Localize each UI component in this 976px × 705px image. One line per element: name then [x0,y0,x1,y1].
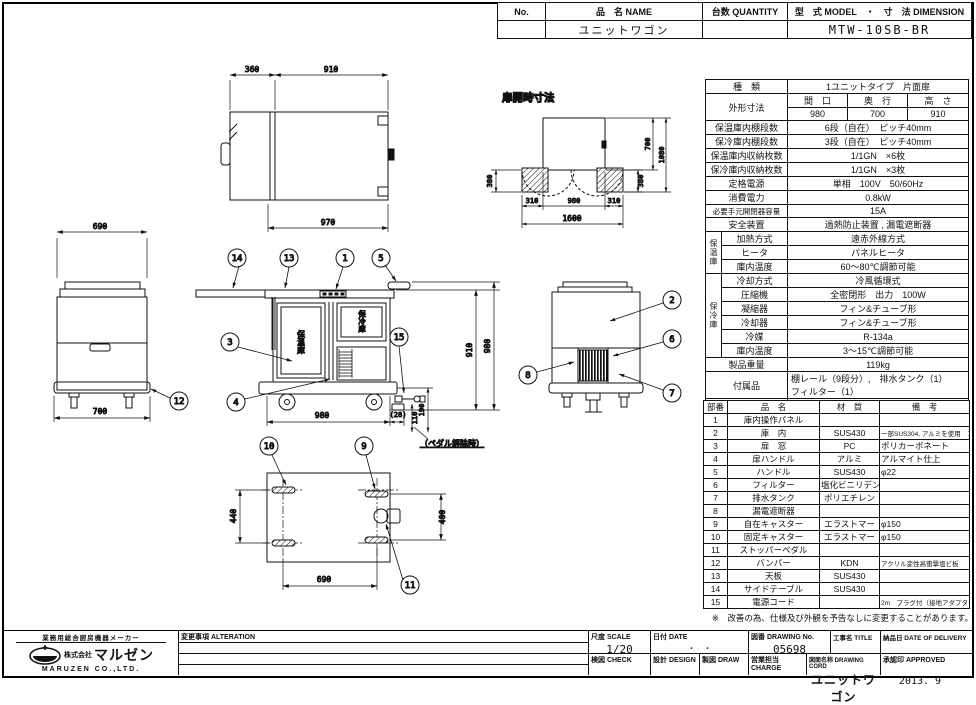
balloon-2: 2 [663,291,681,309]
spec-value: 1/1GN ×6枚 [788,149,969,163]
spec-value: 6段（自在） ピッチ40mm [788,121,969,135]
part-note: φ22 [880,466,970,479]
draw-label: 製図 DRAW [700,654,748,666]
drawing-name-cell: 図面名称 DRAWING CORDユニットワゴン [806,653,880,675]
part-mat: ポリエチレン [820,492,880,505]
spec-value: 980 [788,108,848,121]
spec-label: 保冷庫内棚段数 [706,135,788,149]
parts-row: 7排水タンクポリエチレン [704,492,970,505]
part-no: 14 [704,583,728,596]
alteration-line [179,664,588,665]
part-name: 庫内操作パネル [728,414,820,427]
door-open-title: 扉開時寸法 [501,91,555,104]
spec-label: 保温庫内棚段数 [706,121,788,135]
company-name-en: MARUZEN CO.,LTD. [4,666,178,673]
spec-label: 奥 行 [848,94,908,108]
front-dim-980v: 980 [483,339,492,354]
parts-row: 13天板SUS430 [704,570,970,583]
svg-text:9: 9 [361,442,366,452]
parts-mat-header: 材 質 [820,401,880,414]
parts-row: 11ストッパーペダル [704,544,970,557]
parts-row: 2庫 内SUS430一部SUS304, アルミを使用 コーナー部R加工 [704,427,970,440]
parts-row: 15電源コード2m プラグ付（接地アダプター付） [704,596,970,609]
plan-view: 360 910 970 [221,65,394,232]
door-dim-310-right: 310 [608,197,621,205]
part-mat: エラストマー [820,531,880,544]
part-no: 5 [704,466,728,479]
scale-label: 尺度 SCALE [589,631,650,643]
spec-value: 119kg [788,358,969,372]
balloon-leaders [151,265,663,580]
svg-text:5: 5 [378,254,383,264]
spec-group-warm: 保温庫 [706,232,722,274]
door-dim-310-left: 310 [526,197,539,205]
parts-row: 4扉ハンドルアルミアルマイト仕上 [704,453,970,466]
bottom-dim-690: 690 [317,575,332,584]
part-mat: SUS430 [820,427,880,440]
parts-row: 5ハンドルSUS430φ22 [704,466,970,479]
part-note: アルマイト仕上 [880,453,970,466]
part-name: ストッパーペダル [728,544,820,557]
alteration-cell: 変更事項 ALTERATION [178,631,588,675]
svg-text:1: 1 [342,254,347,264]
door-open-view: 扉開時寸法 380 [486,91,671,228]
svg-text:10: 10 [264,442,275,452]
spec-label: 庫内温度 [722,344,788,358]
charge-cell: 営業担当 CHARGE [748,653,806,675]
bottom-dim-440: 440 [229,509,238,524]
spec-label: 冷却方式 [722,274,788,288]
drawing-no-label: 図番 DRAWING No. [749,631,830,643]
spec-label: 保温庫内収納枚数 [706,149,788,163]
balloon-3: 3 [221,333,239,351]
spec-value: 3〜15℃調節可能 [788,344,969,358]
part-mat: エラストマー [820,518,880,531]
svg-text:12: 12 [174,397,185,407]
accessory-line-1: 棚レール（9段分）, 排水タンク（1） [791,372,965,385]
balloon-13: 13 [280,249,298,267]
spec-value: 0.8kW [788,191,969,205]
drawing-name-label: 図面名称 DRAWING CORD [807,654,880,671]
front-warm-label: 保温庫 [297,329,306,355]
left-dim-690: 690 [93,222,108,231]
balloons: 14 13 1 5 3 4 15 12 2 6 8 7 10 9 11 [170,249,681,594]
accessory-line-2: フィルター（1） [791,385,965,398]
part-name: 扉 窓 [728,440,820,453]
title-cell: 工事名 TITLE [830,631,880,653]
header-model-label: 型 式 MODEL ・ 寸 法 DIMENSION [788,3,972,21]
header-name-label: 品 名 NAME [546,3,703,21]
part-mat: PC [820,440,880,453]
door-dim-380-right: 380 [637,175,645,188]
spec-value: 700 [848,108,908,121]
svg-text:11: 11 [405,581,416,591]
delivery-label: 納品日 DATE OF DELIVERY [881,631,972,643]
part-mat [820,505,880,518]
spec-label: 冷媒 [722,330,788,344]
part-no: 6 [704,479,728,492]
part-no: 8 [704,505,728,518]
title-block: 業務用総合厨房機器メーカー 株式会社マルゼン MARUZEN CO.,LTD. … [4,630,972,675]
svg-text:7: 7 [669,389,674,399]
disclaimer-note: ※ 改善の為、仕様及び外観を予告なしに変更することがあります。 [640,612,973,624]
spec-value: 単相 100V 50/60Hz [788,177,969,191]
part-note: ポリカーボネート [880,440,970,453]
part-mat: アルミ [820,453,880,466]
part-name: 自在キャスター [728,518,820,531]
front-dim-910: 910 [465,343,474,358]
spec-label: 製品重量 [706,358,788,372]
parts-row: 14サイドテーブルSUS430 [704,583,970,596]
part-note: 2m プラグ付（接地アダプター付） [880,596,970,609]
spec-label: 定格電源 [706,177,788,191]
svg-text:13: 13 [284,254,295,264]
header-label-row: No. 品 名 NAME 台数 QUANTITY 型 式 MODEL ・ 寸 法… [498,3,972,21]
bottom-view: 440 400 690 [229,473,447,590]
balloon-9: 9 [355,437,373,455]
part-name: 扉ハンドル [728,453,820,466]
header-no-label: No. [498,3,546,21]
part-name: 漏電遮断器 [728,505,820,518]
balloon-1: 1 [336,249,354,267]
spec-value: 15A [788,205,969,218]
part-mat [820,414,880,427]
part-name: サイドテーブル [728,583,820,596]
spec-label: 冷却器 [722,316,788,330]
part-no: 2 [704,427,728,440]
part-mat [820,544,880,557]
balloon-10: 10 [260,437,278,455]
part-name: バンパー [728,557,820,570]
part-no: 9 [704,518,728,531]
svg-text:3: 3 [227,338,232,348]
spec-label: ヒータ [722,246,788,260]
plan-dim-910: 910 [324,65,339,74]
part-mat: SUS430 [820,466,880,479]
part-note: φ150 [880,531,970,544]
spec-value: 棚レール（9段分）, 排水タンク（1）フィルター（1） [788,372,969,399]
balloon-14: 14 [228,249,246,267]
part-note [880,544,970,557]
check-cell: 検図 CHECK [588,653,650,675]
design-cell: 設計 DESIGN [650,653,699,675]
spec-value: 3段（自在） ピッチ40mm [788,135,969,149]
parts-row: 3扉 窓PCポリカーボネート [704,440,970,453]
header-qty-label: 台数 QUANTITY [703,3,788,21]
spec-label: 凝縮器 [722,302,788,316]
date-cell: 日付 DATE・ ・ [650,631,748,653]
delivery-cell: 納品日 DATE OF DELIVERY [880,631,972,653]
spec-table: 種 類1ユニットタイプ 片面扉 外形寸法間 口奥 行高 さ 980700910 … [705,79,969,426]
part-no: 10 [704,531,728,544]
drawing-header-table: No. 品 名 NAME 台数 QUANTITY 型 式 MODEL ・ 寸 法… [497,2,972,39]
spec-label: 安全装置 [706,218,788,232]
part-note [880,414,970,427]
charge-label: 営業担当 CHARGE [749,654,806,673]
balloon-7: 7 [663,384,681,402]
balloon-11: 11 [401,576,419,594]
header-value-row: ユニットワゴン MTW-10SB-BR [498,21,972,39]
model-number: MTW-10SB-BR [788,21,972,39]
spec-label: 庫内温度 [722,260,788,274]
alteration-line [179,642,588,643]
svg-text:2: 2 [669,296,674,306]
part-note: 一部SUS304, アルミを使用 コーナー部R加工 [880,427,970,440]
approved-label: 承認印 APPROVED [881,654,972,666]
maker-tagline: 業務用総合厨房機器メーカー [16,632,166,643]
balloon-12: 12 [170,392,188,410]
scale-cell: 尺度 SCALE1/20 [588,631,650,653]
front-view: 保温庫 保冷庫 910 980 980 (28) 110 190 [196,282,500,448]
door-dim-1600: 1600 [562,214,581,223]
drawing-no-cell: 図番 DRAWING No.05698 [748,631,830,653]
spec-value: 910 [908,108,969,121]
part-note [880,583,970,596]
parts-row: 1庫内操作パネル [704,414,970,427]
part-name: ハンドル [728,466,820,479]
front-dim-190: 190 [418,404,426,417]
part-mat: SUS430 [820,570,880,583]
title-label: 工事名 TITLE [831,631,880,643]
left-side-view: 690 700 [54,222,150,422]
spec-label: 高 さ [908,94,969,108]
svg-text:14: 14 [232,254,243,264]
part-note [880,570,970,583]
company-prefix: 株式会社 [64,650,92,660]
part-no: 12 [704,557,728,570]
check-label: 検図 CHECK [589,654,650,666]
parts-note-header: 備 考 [880,401,970,414]
spec-label: 加熱方式 [722,232,788,246]
parts-row: 8漏電遮断器 [704,505,970,518]
spec-value: 遠赤外線方式 [788,232,969,246]
spec-label: 保冷庫内収納枚数 [706,163,788,177]
header-qty-value [703,21,788,39]
parts-header-row: 部番 品 名 材 質 備 考 [704,401,970,414]
balloon-15: 15 [390,328,408,346]
alteration-line [179,653,588,654]
date-label: 日付 DATE [651,631,748,643]
spec-value: 60〜80℃調節可能 [788,260,969,274]
part-name: 固定キャスター [728,531,820,544]
design-label: 設計 DESIGN [651,654,699,666]
spec-value: フィン&チューブ形 [788,316,969,330]
maruzen-logo-icon [28,644,62,666]
bottom-dim-400: 400 [438,510,447,525]
right-side-view [549,282,643,412]
balloon-8: 8 [519,366,537,384]
part-note [880,505,970,518]
part-note: アクリル変性高衝撃塩ビ板 [880,557,970,570]
spec-value: パネルヒータ [788,246,969,260]
spec-label: 外形寸法 [706,94,788,121]
part-name: 排水タンク [728,492,820,505]
spec-value: 冷風循環式 [788,274,969,288]
spec-label: 付属品 [706,372,788,399]
spec-label: 必要手元開閉器容量 [706,205,788,218]
spec-label: 圧縮機 [722,288,788,302]
spec-value: R-134a [788,330,969,344]
part-note: φ150 [880,518,970,531]
part-no: 15 [704,596,728,609]
front-dim-980h: 980 [315,411,330,420]
part-name: 電源コード [728,596,820,609]
company-logo-cell: 業務用総合厨房機器メーカー 株式会社マルゼン MARUZEN CO.,LTD. [4,631,178,675]
parts-row: 10固定キャスターエラストマーφ150 [704,531,970,544]
door-dim-700: 700 [644,138,652,151]
header-no-value [498,21,546,39]
parts-row: 9自在キャスターエラストマーφ150 [704,518,970,531]
plan-dim-970: 970 [321,218,336,227]
front-pedal-note: （ペダル解除時） [420,438,484,448]
part-mat: SUS430 [820,583,880,596]
company-logo-text: マルゼン [94,645,154,665]
part-name: フィルター [728,479,820,492]
product-name: ユニットワゴン [546,21,703,39]
part-no: 11 [704,544,728,557]
draw-cell: 製図 DRAW [699,653,748,675]
spec-label: 消費電力 [706,191,788,205]
spec-group-cold: 保冷庫 [706,274,722,358]
balloon-4: 4 [227,393,245,411]
door-dim-380-left: 380 [486,175,494,188]
door-dim-1080: 1080 [658,147,666,164]
svg-text:6: 6 [669,335,674,345]
spec-value: 過熱防止装置 , 漏電遮断器 [788,218,969,232]
drawing-sheet: { "sheet": { "header": { "no_label": "No… [0,0,976,692]
plan-dim-360: 360 [245,65,260,74]
front-cold-label: 保冷庫 [357,310,366,334]
spec-value: 1/1GN ×3枚 [788,163,969,177]
parts-row: 12バンパーKDNアクリル変性高衝撃塩ビ板 [704,557,970,570]
front-dim-28: (28) [390,411,407,419]
balloon-6: 6 [663,330,681,348]
part-mat [820,596,880,609]
part-no: 4 [704,453,728,466]
spec-label: 種 類 [706,80,788,94]
left-dim-700: 700 [93,407,108,416]
spec-label: 間 口 [788,94,848,108]
balloon-5: 5 [372,249,390,267]
part-no: 3 [704,440,728,453]
spec-value: フィン&チューブ形 [788,302,969,316]
svg-text:15: 15 [394,333,405,343]
svg-text:8: 8 [525,371,530,381]
door-dim-980: 980 [568,197,581,205]
spec-value: 1ユニットタイプ 片面扉 [788,80,969,94]
parts-name-header: 品 名 [728,401,820,414]
spec-value: 全密閉形 出力 100W [788,288,969,302]
parts-no-header: 部番 [704,401,728,414]
part-no: 1 [704,414,728,427]
approved-cell: 承認印 APPROVED [880,653,972,675]
part-no: 7 [704,492,728,505]
part-mat: KDN [820,557,880,570]
part-mat: 塩化ビニリデン [820,479,880,492]
part-note [880,479,970,492]
part-no: 13 [704,570,728,583]
part-name: 天板 [728,570,820,583]
part-note [880,492,970,505]
issue-date: 2013. 9 [870,676,970,687]
part-name: 庫 内 [728,427,820,440]
parts-row: 6フィルター塩化ビニリデン [704,479,970,492]
svg-text:4: 4 [233,398,238,408]
parts-table: 部番 品 名 材 質 備 考 1庫内操作パネル 2庫 内SUS430一部SUS3… [703,400,970,609]
